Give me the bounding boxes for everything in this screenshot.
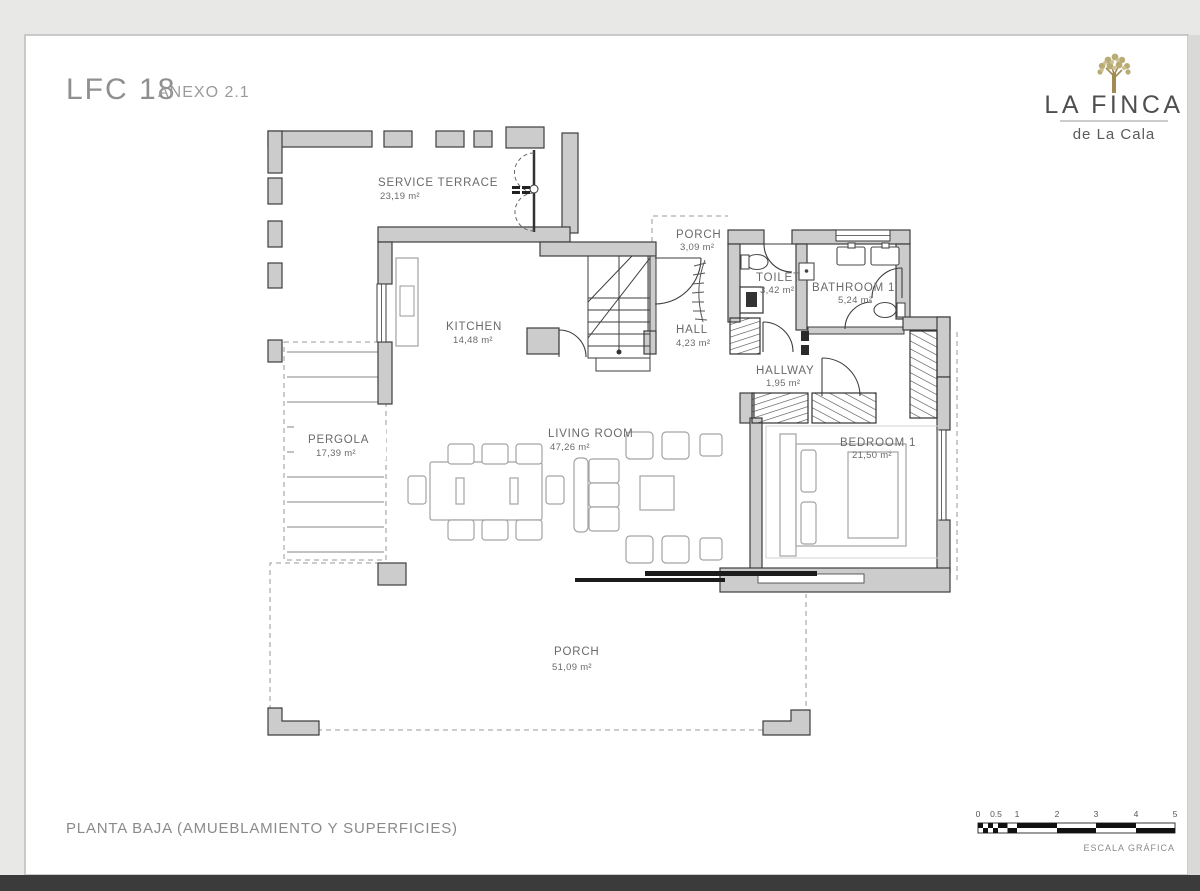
walk-in-closet (910, 331, 937, 418)
pocket-door (801, 331, 809, 341)
armchair (662, 432, 689, 459)
pouf (700, 538, 722, 560)
svg-text:PORCH: PORCH (554, 646, 600, 658)
paper-sheet (25, 35, 1188, 875)
pillow (801, 450, 816, 492)
pillar (384, 131, 412, 147)
wall (937, 377, 950, 430)
wall (540, 242, 656, 256)
scale-caption: ESCALA GRÁFICA (1083, 843, 1175, 853)
svg-text:TOILET: TOILET (756, 272, 801, 284)
svg-text:23,19 m²: 23,19 m² (380, 191, 420, 202)
chair (482, 444, 508, 464)
closet (730, 318, 760, 354)
svg-text:1,95 m²: 1,95 m² (766, 378, 800, 389)
svg-text:17,39 m²: 17,39 m² (316, 448, 356, 459)
wall (268, 131, 372, 147)
scale-tick: 3 (1094, 809, 1099, 819)
svg-text:51,09 m²: 51,09 m² (552, 662, 592, 673)
wall (527, 328, 559, 354)
pocket-door (801, 345, 809, 355)
scale-bar-graphic (978, 823, 1175, 833)
sink (871, 247, 899, 265)
svg-text:3,09 m²: 3,09 m² (680, 242, 714, 253)
svg-text:4,23 m²: 4,23 m² (676, 338, 710, 349)
headboard (780, 434, 796, 556)
armchair (662, 536, 689, 563)
bottom-scan-bar (0, 875, 1200, 891)
wall (728, 244, 740, 322)
chair (408, 476, 426, 504)
pouf (700, 434, 722, 456)
svg-text:PORCH: PORCH (676, 229, 722, 241)
wardrobe (752, 393, 808, 423)
wall (378, 227, 570, 242)
sofa-back (574, 458, 588, 532)
wall (796, 244, 807, 330)
wall (937, 317, 950, 377)
svg-text:HALL: HALL (676, 324, 708, 336)
wall (378, 242, 392, 284)
coffee-table (640, 476, 674, 510)
faucet (848, 243, 855, 248)
drain-dot (805, 269, 809, 273)
pillar (506, 127, 544, 148)
wall (728, 230, 764, 244)
svg-text:21,50 m²: 21,50 m² (852, 450, 892, 461)
sofa-seat (589, 507, 619, 531)
chair (448, 444, 474, 464)
svg-text:3,42 m²: 3,42 m² (760, 285, 794, 296)
sofa-seat (589, 459, 619, 483)
pillar (268, 221, 282, 247)
brand-name: LA FINCA (1044, 91, 1183, 119)
wall (562, 133, 578, 233)
plan-caption: PLANTA BAJA (AMUEBLAMIENTO Y SUPERFICIES… (66, 820, 458, 837)
svg-text:BATHROOM 1: BATHROOM 1 (812, 282, 895, 294)
dining-table (430, 462, 542, 520)
armchair (626, 536, 653, 563)
scale-tick: 0 (976, 809, 981, 819)
scale-tick: 2 (1055, 809, 1060, 819)
chair (516, 520, 542, 540)
brand-subtitle: de La Cala (1073, 126, 1156, 143)
svg-text:14,48 m²: 14,48 m² (453, 335, 493, 346)
pillar (268, 340, 282, 362)
chair (516, 444, 542, 464)
pillar (474, 131, 492, 147)
sink (837, 247, 865, 265)
svg-text:LIVING ROOM: LIVING ROOM (548, 428, 633, 440)
svg-text:SERVICE TERRACE: SERVICE TERRACE (378, 177, 498, 189)
toilet-tank (741, 255, 749, 269)
toilet-tank (897, 303, 905, 317)
pillar (378, 563, 406, 585)
faucet (882, 243, 889, 248)
scale-tick: 1 (1015, 809, 1020, 819)
sliding-door-panel (645, 571, 817, 576)
pillar (268, 178, 282, 204)
wall (808, 327, 904, 334)
svg-text:BEDROOM 1: BEDROOM 1 (840, 437, 916, 449)
right-scan-edge (1188, 35, 1200, 875)
chair (546, 476, 564, 504)
pillow (801, 502, 816, 544)
page-background (0, 0, 1200, 891)
floor-plan-sheet: LFC 18 ANEXO 2.1 LA FINCA de La Cala (0, 0, 1200, 891)
scale-tick: 4 (1134, 809, 1139, 819)
sofa-seat (589, 483, 619, 507)
scale-tick: 0.5 (990, 809, 1002, 819)
wardrobe (812, 393, 876, 423)
wall (750, 418, 762, 570)
chair (482, 520, 508, 540)
pillar (268, 263, 282, 288)
pillar (436, 131, 464, 147)
sliding-door-panel (575, 578, 725, 582)
drawing-annex: ANEXO 2.1 (158, 84, 250, 101)
svg-text:PERGOLA: PERGOLA (308, 434, 369, 446)
svg-text:47,26 m²: 47,26 m² (550, 442, 590, 453)
toilet-bowl (874, 303, 896, 318)
svg-text:KITCHEN: KITCHEN (446, 321, 502, 333)
wall (378, 342, 392, 404)
svg-text:HALLWAY: HALLWAY (756, 365, 814, 377)
chair (448, 520, 474, 540)
scale-tick: 5 (1173, 809, 1178, 819)
wall (937, 520, 950, 572)
cabinet-detail (746, 292, 757, 307)
svg-text:5,24 m²: 5,24 m² (838, 295, 872, 306)
wall (268, 131, 282, 173)
kitchen-counter (396, 258, 418, 346)
counter (396, 258, 418, 346)
